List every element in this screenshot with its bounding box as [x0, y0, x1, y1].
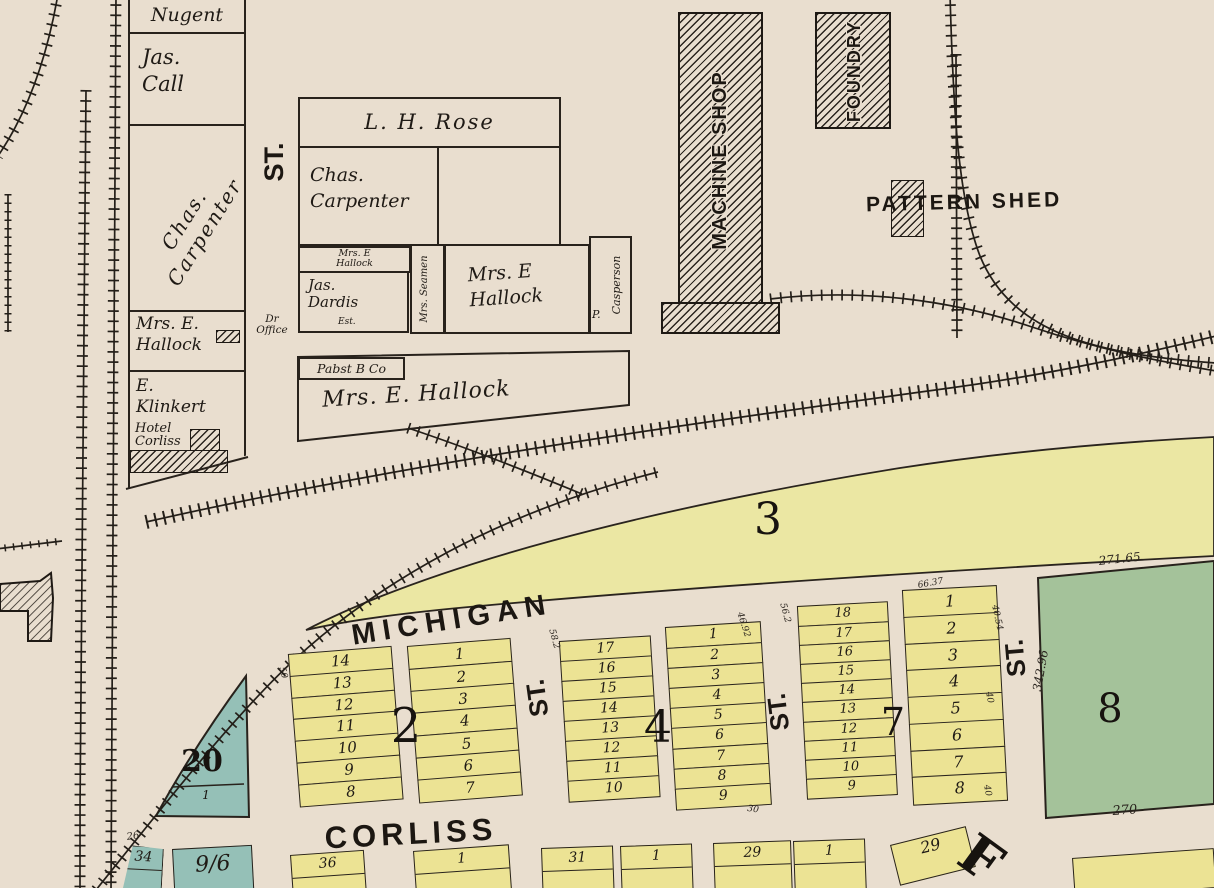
lot-number: 34 [124, 846, 163, 871]
owner-initial-casperson: P. [592, 308, 601, 321]
lot-number: 31 [542, 847, 613, 872]
lot-number: 1 [794, 840, 865, 865]
street-label-st-4: ST. [997, 625, 1032, 691]
lot-number: 9/6 [173, 846, 252, 872]
owner-name: L. H. Rose [300, 99, 559, 146]
parcel-rose: L. H. Rose [298, 97, 561, 148]
bottom-lot-empty [1072, 848, 1214, 888]
block4-number: 4 [638, 702, 678, 753]
block20-divider [172, 784, 244, 787]
dim-56-2: 56.2 [777, 602, 792, 624]
parcel-chas-carpenter-2: Chas. Carpenter [298, 146, 439, 246]
owner-name-est: Est. [338, 317, 356, 327]
corner-dim-26: 26 [126, 830, 140, 843]
owner-name: E. Klinkert [130, 372, 244, 418]
bottom-lot-1c: 1 [793, 838, 867, 888]
owner-name: Jas. Call [130, 34, 244, 98]
corner-lot-34: 34 [121, 845, 164, 888]
lot: 8 [912, 772, 1008, 805]
hotel-corliss-label: Hotel Corliss [135, 422, 181, 448]
parcel-mrs-hallock-2: Mrs. E Hallock [298, 246, 411, 273]
owner-name: Nugent [130, 0, 244, 26]
parcel-nugent: Nugent [128, 0, 246, 34]
dr-office-label: Dr Office [246, 314, 298, 336]
parcel-empty [437, 146, 561, 246]
bottom-lot-1b: 1 [620, 843, 694, 888]
block8-dim-bottom: 270 [1112, 802, 1138, 819]
owner-name: Mrs. E Hallock [444, 241, 590, 315]
lot-number: 1 [414, 845, 509, 875]
block20-number: 20 [170, 744, 234, 779]
dim-30: 30 [747, 804, 760, 815]
owner-name-hallock-bottom: Mrs. E. Hallock [321, 376, 511, 412]
dim-50: 50 [276, 666, 289, 680]
lot-number: 1 [621, 845, 692, 870]
lot: 9 [806, 774, 898, 800]
l-shaped-building [0, 573, 53, 641]
hotel-building-lower [130, 450, 228, 473]
plat-map: Nugent Jas. Call Chas. Carpenter Mrs. E.… [0, 0, 1214, 888]
bottom-lot-36: 36 [290, 850, 367, 888]
bottom-lot-1a: 1 [413, 844, 512, 888]
owner-name: Jas. Dardis [300, 273, 407, 311]
dim-40-a: 40 [983, 691, 995, 704]
lot-number: 36 [291, 851, 364, 879]
owner-name-mrs-seamen: Mrs. Seamen [419, 246, 435, 332]
owner-name: Mrs. E Hallock [300, 248, 409, 269]
lot: 10 [567, 775, 660, 802]
bottom-lot-31: 31 [541, 845, 615, 888]
dr-office-building [216, 330, 240, 343]
block3-number: 3 [748, 494, 788, 545]
corner-lot-96: 9/6 [172, 845, 254, 888]
parcel-jas-dardis: Jas. Dardis Est. [298, 271, 409, 333]
lot-number: 29 [714, 841, 791, 867]
street-label-st-2: ST. [518, 664, 557, 732]
hotel-building-upper [190, 429, 220, 451]
dim-58-2: 58.2 [546, 628, 561, 650]
block8-dim-left: 342.96 [1030, 649, 1051, 693]
owner-name: Pabst B Co [300, 359, 403, 378]
street-label-st-1: ST. [259, 127, 291, 197]
block7-number: 7 [876, 700, 910, 744]
block8-number: 8 [1090, 686, 1130, 732]
parcel-mrs-hallock-3: Mrs. E Hallock [444, 244, 590, 334]
dim-40-b: 40 [981, 784, 993, 797]
block4-right-lots: 1 2 3 4 5 6 7 8 9 [665, 623, 772, 810]
block8-dim-top: 271.65 [1098, 550, 1141, 568]
block2-number: 2 [383, 698, 429, 754]
foundry-label: FOUNDRY [844, 0, 868, 151]
parcel-pabst: Pabst B Co [298, 357, 405, 380]
parcel-jas-call: Jas. Call [128, 32, 246, 126]
owner-name: Chas. Carpenter [300, 148, 437, 214]
bottom-lot-29a: 29 [713, 840, 793, 888]
machine-shop-label: MACHINE SHOP [709, 10, 735, 310]
owner-name-casperson: Casperson [610, 238, 624, 332]
block20-lot: 1 [196, 788, 216, 802]
